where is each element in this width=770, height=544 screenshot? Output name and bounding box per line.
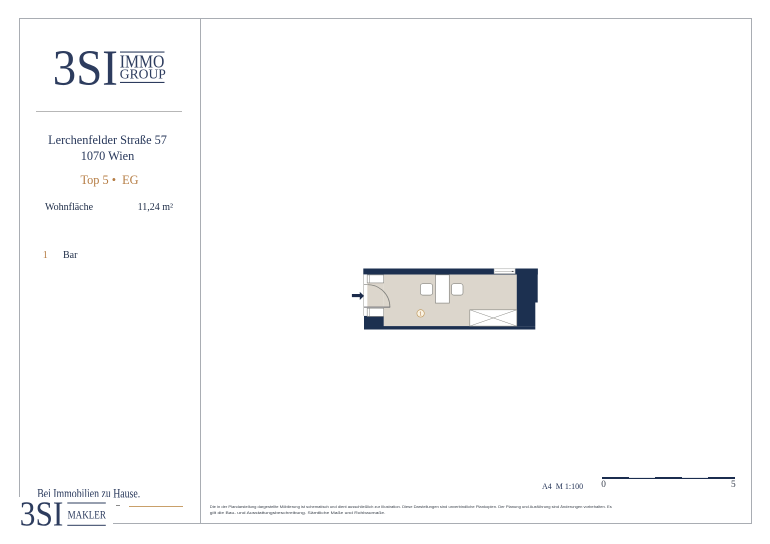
svg-text:1: 1 xyxy=(419,312,422,318)
svg-text:GROUP: GROUP xyxy=(120,68,166,83)
svg-text:3SI: 3SI xyxy=(20,496,64,532)
svg-text:3SI: 3SI xyxy=(53,41,118,92)
svg-text:gilt die Bau- und Ausstattungs: gilt die Bau- und Ausstattungsbeschreibu… xyxy=(210,510,386,515)
svg-text:Die in der Plandarstellung dar: Die in der Plandarstellung dargestellte … xyxy=(210,504,612,509)
svg-text:MAKLER: MAKLER xyxy=(68,508,106,522)
